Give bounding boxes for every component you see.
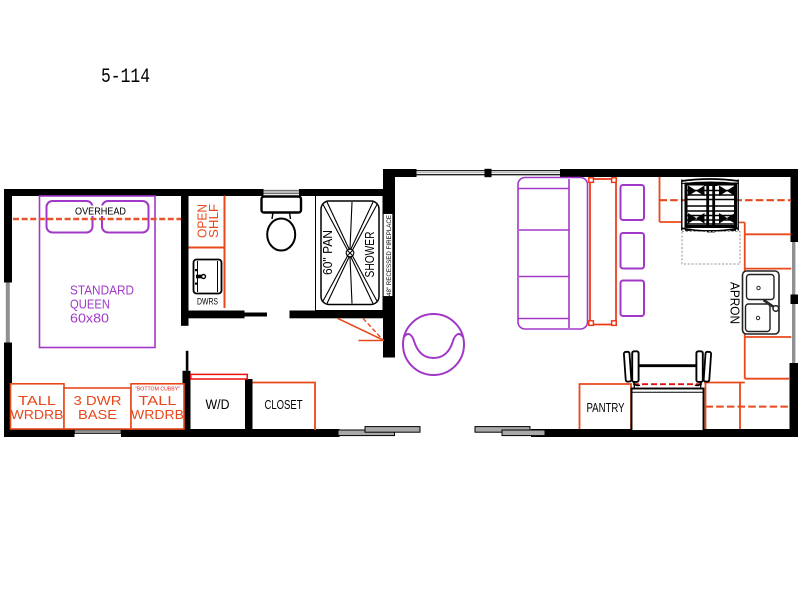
svg-text:SHLF: SHLF	[207, 204, 221, 238]
svg-text:5-114: 5-114	[101, 66, 150, 89]
svg-text:DWRS: DWRS	[197, 297, 218, 308]
svg-text:3 DWR: 3 DWR	[74, 393, 122, 408]
svg-text:60x80: 60x80	[70, 312, 109, 326]
svg-text:48" RECESSED FIREPLACE: 48" RECESSED FIREPLACE	[386, 215, 393, 296]
svg-text:"BOTTOM CUBBY": "BOTTOM CUBBY"	[135, 387, 180, 393]
svg-text:WRDRB: WRDRB	[11, 407, 64, 422]
svg-text:SHOWER: SHOWER	[362, 232, 377, 278]
svg-text:WRDRB: WRDRB	[131, 407, 184, 422]
svg-text:PANTRY: PANTRY	[587, 401, 625, 415]
svg-text:BASE: BASE	[78, 407, 117, 422]
svg-text:STANDARD: STANDARD	[70, 284, 134, 298]
svg-text:W/D: W/D	[206, 396, 230, 412]
svg-text:60" PAN: 60" PAN	[320, 230, 335, 275]
svg-text:OVERHEAD: OVERHEAD	[75, 206, 126, 218]
svg-text:QUEEN: QUEEN	[70, 298, 110, 312]
svg-text:TALL: TALL	[139, 393, 177, 408]
svg-text:CLOSET: CLOSET	[265, 398, 303, 412]
svg-text:APRON: APRON	[728, 282, 742, 324]
svg-text:TALL: TALL	[18, 393, 56, 408]
